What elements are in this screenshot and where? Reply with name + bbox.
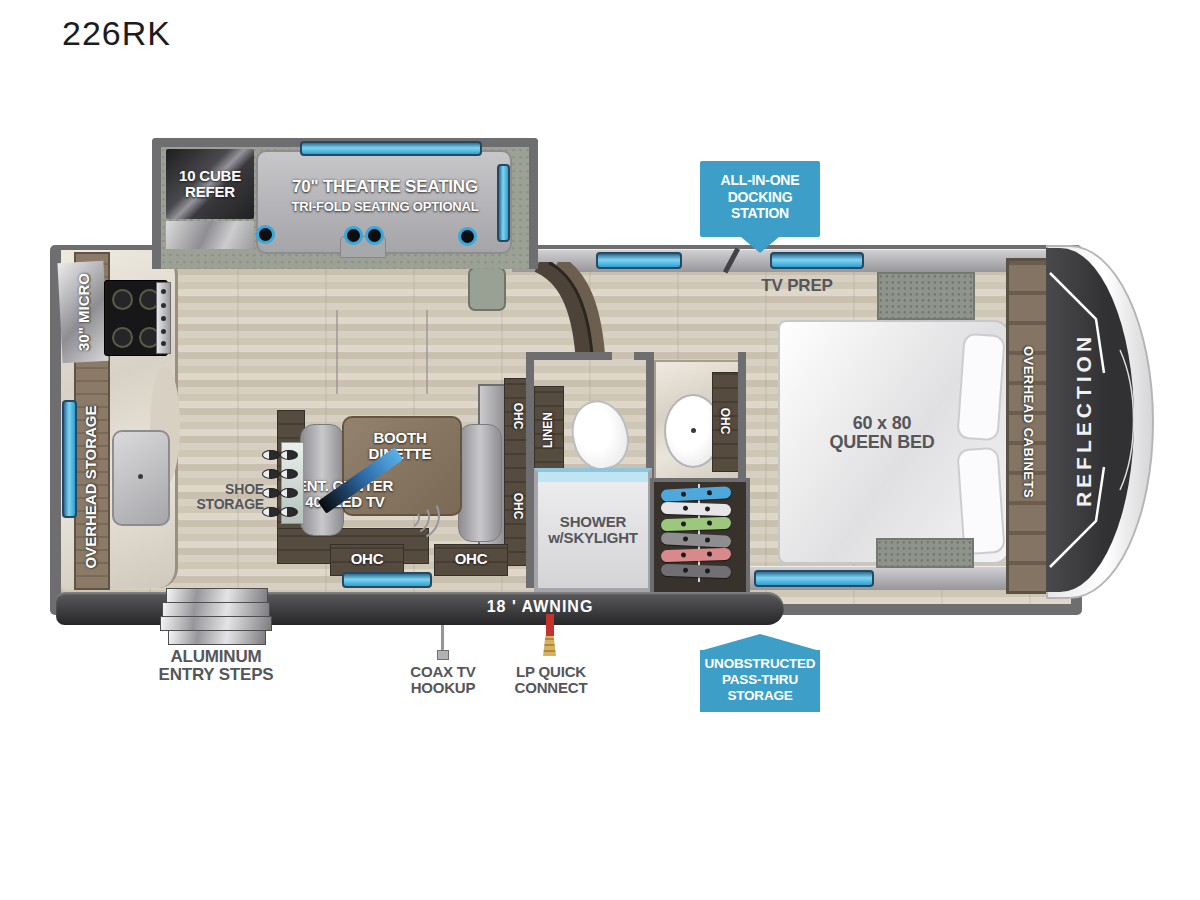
queen-bed-label: 60 x 80 QUEEN BED xyxy=(800,414,964,453)
lp-connector-icon xyxy=(546,614,554,636)
window-bedroom-top xyxy=(770,252,864,269)
ohc-label-bottom-left: OHC xyxy=(331,545,403,573)
coax-line xyxy=(441,625,444,651)
kitchen-sink xyxy=(112,430,170,526)
front-cap-accents xyxy=(1046,245,1150,595)
passthru-badge: UNOBSTRUCTED PASS-THRU STORAGE xyxy=(700,650,820,712)
refer-counter xyxy=(166,221,254,249)
coax-connector-icon xyxy=(437,650,449,660)
burner-icon xyxy=(112,289,133,310)
passthru-badge-roof xyxy=(700,634,820,651)
lp-nozzle-icon xyxy=(543,636,556,656)
docking-station-badge: ALL-IN-ONE DOCKING STATION xyxy=(700,161,820,237)
shoe-icon xyxy=(280,469,298,479)
burner-icon xyxy=(112,327,133,348)
shoe-icon xyxy=(262,507,280,517)
entry-steps-label: ALUMINUM ENTRY STEPS xyxy=(138,648,294,685)
bath-wall-left xyxy=(526,352,534,588)
wardrobe xyxy=(650,478,750,596)
linen-label: LINEN xyxy=(541,412,555,448)
ohc-label-bottom-right: OHC xyxy=(435,545,507,573)
cupholder-icon xyxy=(458,227,477,246)
entry-counter xyxy=(468,267,506,311)
shoe-icon xyxy=(262,469,280,479)
docking-badge-pointer xyxy=(741,237,779,253)
entry-steps xyxy=(168,630,266,645)
brand-label: REFLECTION xyxy=(1072,333,1096,507)
awning-label: 18 ' AWNING xyxy=(470,598,610,615)
entry-steps xyxy=(160,616,272,631)
ohc-label-hall-upper: OHC xyxy=(511,403,525,430)
shoe-icon xyxy=(280,488,298,498)
bed-head-bench xyxy=(877,272,975,320)
ohc-label-bath: OHC xyxy=(718,408,732,435)
refrigerator: 10 CUBE REFER xyxy=(166,149,254,219)
bath-wall-right xyxy=(646,352,654,482)
stove-knobs xyxy=(156,282,171,354)
window-kitchen-side xyxy=(62,400,77,518)
shoe-icon xyxy=(262,488,280,498)
dinette-bench-right xyxy=(458,424,502,542)
passthru-label: UNOBSTRUCTED PASS-THRU STORAGE xyxy=(700,650,820,704)
refer-label: 10 CUBE REFER xyxy=(179,168,241,200)
entry-steps xyxy=(162,602,270,617)
page-title: 226RK xyxy=(62,14,171,53)
cupholder-icon xyxy=(344,226,363,245)
shoe-icon xyxy=(280,507,298,517)
lp-label: LP QUICK CONNECT xyxy=(506,664,596,696)
drain-icon xyxy=(138,474,143,479)
overhead-storage-label: OVERHEAD STORAGE xyxy=(82,405,99,568)
window-dinette-bottom xyxy=(342,572,432,588)
window-slideout xyxy=(300,141,482,156)
cupholder-icon xyxy=(365,226,384,245)
shoe-icon xyxy=(280,450,298,460)
shoe-storage-label: SHOE STORAGE xyxy=(182,482,264,512)
bed-foot-bench xyxy=(876,538,974,568)
cupholder-icon xyxy=(256,225,275,244)
interior-steps xyxy=(530,262,612,358)
overhead-cabinets-label: OVERHEAD CABINETS xyxy=(1021,346,1036,498)
shower-label: SHOWER w/SKYLIGHT xyxy=(548,514,638,546)
tv-prep-label: TV PREP xyxy=(742,277,852,295)
shower: SHOWER w/SKYLIGHT xyxy=(534,468,652,592)
docking-station-label: ALL-IN-ONE DOCKING STATION xyxy=(700,161,820,222)
theatre-sub-label: TRI-FOLD SEATING OPTIONAL xyxy=(262,200,508,214)
window-bedroom-bottom xyxy=(754,570,874,587)
drain-icon xyxy=(691,428,696,433)
floorplan-canvas: 226RK 30" MICRO OVERHEAD STORAGE OHC OHC xyxy=(0,0,1200,900)
ohc-cabinet-bottom-right: OHC xyxy=(434,544,508,576)
entry-steps xyxy=(166,588,268,603)
micro-label: 30" MICRO xyxy=(75,273,92,351)
bath-wall-top xyxy=(526,352,612,360)
ohc-label-hall-lower: OHC xyxy=(511,493,525,520)
shoe-icon xyxy=(262,450,280,460)
coax-label: COAX TV HOOKUP xyxy=(398,664,488,696)
theatre-label: 70" THEATRE SEATING xyxy=(262,178,508,196)
